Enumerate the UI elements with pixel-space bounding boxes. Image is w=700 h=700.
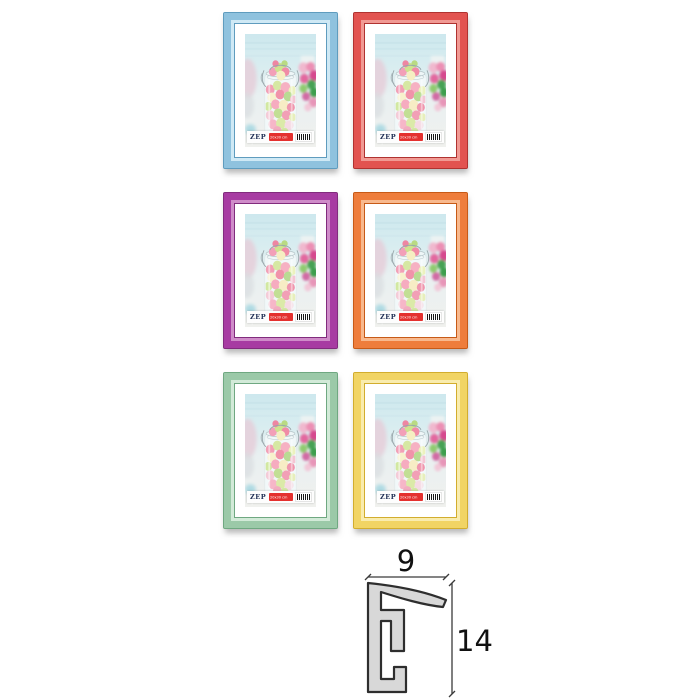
- frame-photo-candy-jar: ZEP 20x30 cm: [375, 394, 446, 507]
- frame-mat: ZEP 20x30 cm: [234, 203, 327, 338]
- size-badge-text: 20x30 cm: [400, 315, 417, 319]
- frame-photo-candy-jar: ZEP 20x30 cm: [245, 34, 316, 147]
- zep-brand-logo: ZEP: [250, 314, 266, 321]
- frame-inner-bevel: ZEP 20x30 cm: [361, 20, 460, 161]
- insert-label-strip: ZEP 20x30 cm: [377, 131, 444, 143]
- size-badge: 20x30 cm: [269, 493, 293, 501]
- frame-profile-cross-section: [368, 583, 446, 692]
- zep-brand-logo: ZEP: [380, 314, 396, 321]
- zep-brand-logo: ZEP: [250, 134, 266, 141]
- profile-diagram: 9 14: [350, 535, 500, 700]
- size-badge: 20x30 cm: [269, 133, 293, 141]
- frame-moulding: ZEP 20x30 cm: [354, 193, 467, 348]
- size-badge: 20x30 cm: [399, 313, 423, 321]
- frame-inner-bevel: ZEP 20x30 cm: [231, 380, 330, 521]
- frame-mat: ZEP 20x30 cm: [364, 383, 457, 518]
- barcode: [426, 133, 441, 141]
- size-badge-text: 20x30 cm: [400, 495, 417, 499]
- picture-frame-blue: ZEP 20x30 cm: [223, 12, 338, 169]
- barcode: [426, 313, 441, 321]
- zep-brand-logo: ZEP: [380, 134, 396, 141]
- size-badge-text: 20x30 cm: [400, 135, 417, 139]
- frame-mat: ZEP 20x30 cm: [364, 23, 457, 158]
- size-badge: 20x30 cm: [269, 313, 293, 321]
- insert-label-strip: ZEP 20x30 cm: [247, 311, 314, 323]
- frame-inner-bevel: ZEP 20x30 cm: [361, 200, 460, 341]
- picture-frame-red: ZEP 20x30 cm: [353, 12, 468, 169]
- size-badge-text: 20x30 cm: [270, 135, 287, 139]
- frame-photo-candy-jar: ZEP 20x30 cm: [375, 34, 446, 147]
- frame-moulding: ZEP 20x30 cm: [224, 193, 337, 348]
- frame-inner-bevel: ZEP 20x30 cm: [231, 200, 330, 341]
- height-dimension-line: [449, 580, 455, 697]
- picture-frame-orange: ZEP 20x30 cm: [353, 192, 468, 349]
- frame-moulding: ZEP 20x30 cm: [354, 13, 467, 168]
- frame-photo-candy-jar: ZEP 20x30 cm: [375, 214, 446, 327]
- picture-frame-purple: ZEP 20x30 cm: [223, 192, 338, 349]
- insert-label-strip: ZEP 20x30 cm: [377, 311, 444, 323]
- zep-brand-logo: ZEP: [380, 494, 396, 501]
- size-badge: 20x30 cm: [399, 493, 423, 501]
- barcode: [296, 313, 311, 321]
- size-badge-text: 20x30 cm: [270, 315, 287, 319]
- frame-inner-bevel: ZEP 20x30 cm: [231, 20, 330, 161]
- frame-moulding: ZEP 20x30 cm: [354, 373, 467, 528]
- frame-mat: ZEP 20x30 cm: [234, 23, 327, 158]
- frames-grid: ZEP 20x30 cm: [223, 12, 468, 529]
- insert-label-strip: ZEP 20x30 cm: [247, 131, 314, 143]
- frame-photo-candy-jar: ZEP 20x30 cm: [245, 394, 316, 507]
- frame-mat: ZEP 20x30 cm: [364, 203, 457, 338]
- picture-frame-green: ZEP 20x30 cm: [223, 372, 338, 529]
- profile-width-dimension: 9: [397, 544, 415, 578]
- frame-photo-candy-jar: ZEP 20x30 cm: [245, 214, 316, 327]
- frame-inner-bevel: ZEP 20x30 cm: [361, 380, 460, 521]
- picture-frame-yellow: ZEP 20x30 cm: [353, 372, 468, 529]
- zep-brand-logo: ZEP: [250, 494, 266, 501]
- insert-label-strip: ZEP 20x30 cm: [247, 491, 314, 503]
- profile-height-dimension: 14: [456, 624, 493, 658]
- barcode: [296, 133, 311, 141]
- frame-mat: ZEP 20x30 cm: [234, 383, 327, 518]
- insert-label-strip: ZEP 20x30 cm: [377, 491, 444, 503]
- frame-moulding: ZEP 20x30 cm: [224, 373, 337, 528]
- barcode: [296, 493, 311, 501]
- size-badge-text: 20x30 cm: [270, 495, 287, 499]
- frame-moulding: ZEP 20x30 cm: [224, 13, 337, 168]
- size-badge: 20x30 cm: [399, 133, 423, 141]
- barcode: [426, 493, 441, 501]
